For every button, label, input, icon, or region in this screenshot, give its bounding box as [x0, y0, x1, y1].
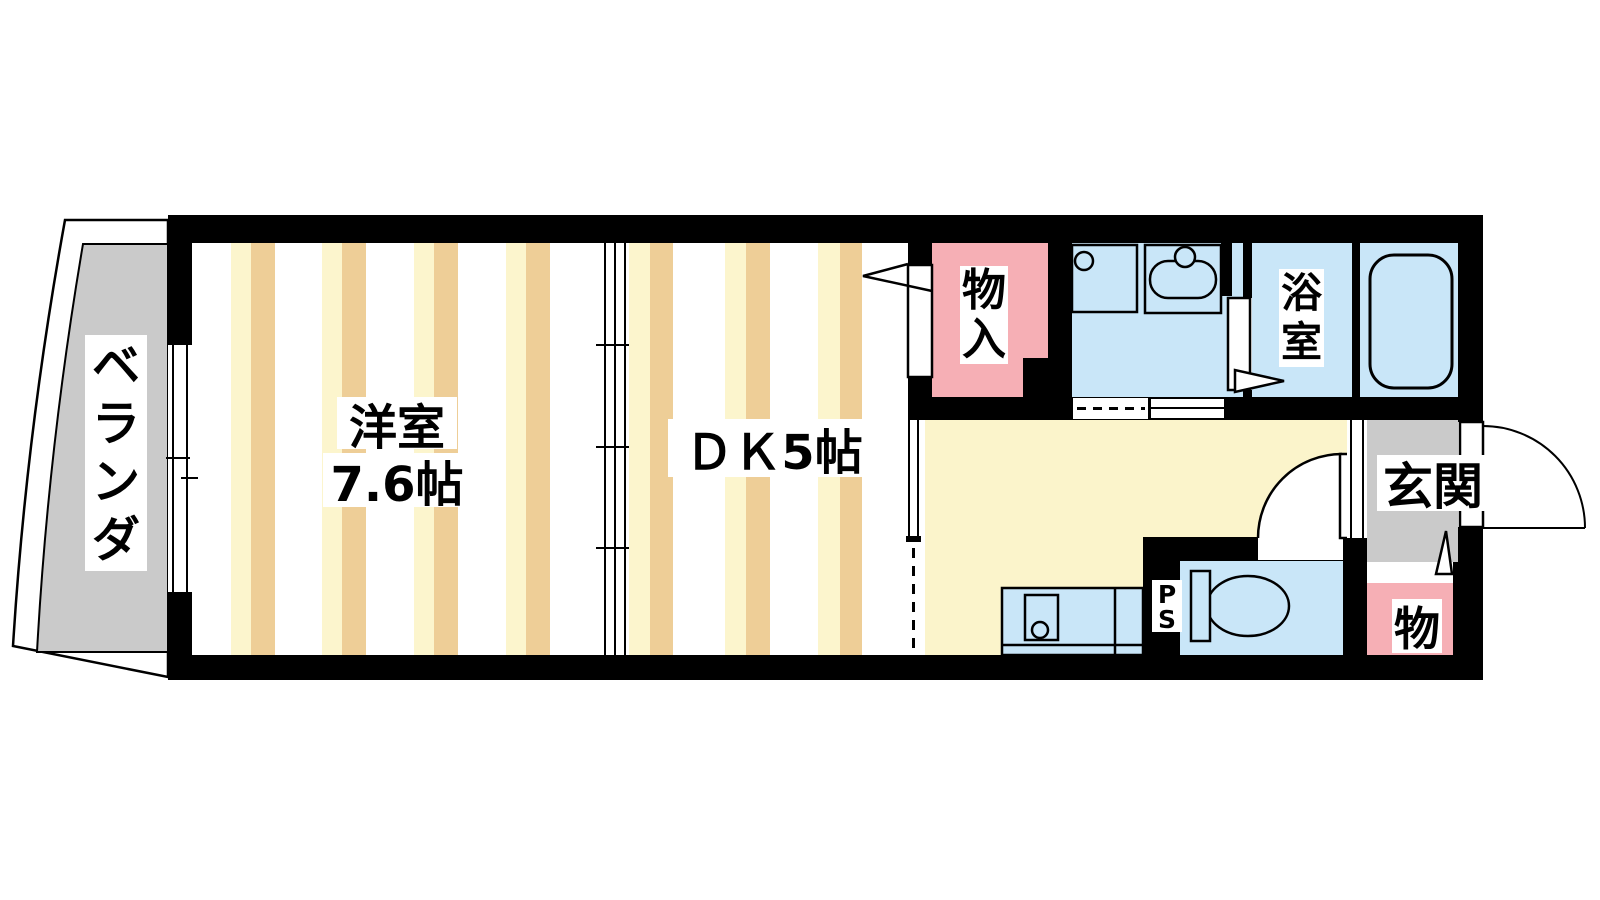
- washroom-area: [1048, 215, 1243, 420]
- entrance-label: 玄関: [1377, 455, 1489, 511]
- western-room-size: 7.6帖: [323, 453, 471, 507]
- closet-door-leaf: [908, 265, 932, 377]
- sliding-door-divider: [596, 243, 634, 655]
- washroom-open-entry: [1073, 398, 1148, 419]
- floor-plan: ベランダ 洋室 7.6帖 ＤＫ5帖 物入 浴室 玄関 物 PS: [0, 0, 1600, 900]
- bathroom-area: [1228, 240, 1458, 420]
- bathroom-label: 浴室: [1279, 269, 1324, 367]
- dk-label: ＤＫ5帖: [668, 419, 880, 477]
- washroom-sliding-panel: [1150, 398, 1225, 419]
- balcony-label: ベランダ: [85, 335, 147, 571]
- small-storage-label: 物: [1392, 599, 1442, 653]
- dk-hallway-boundary: [903, 420, 925, 655]
- pipe-space-label: PS: [1152, 580, 1182, 632]
- kitchen-counter: [1002, 588, 1143, 655]
- lower-wall-band: [908, 397, 1458, 420]
- front-door-swing: [1483, 426, 1585, 528]
- western-room-label: 洋室: [337, 397, 457, 449]
- closet-label: 物入: [960, 266, 1008, 364]
